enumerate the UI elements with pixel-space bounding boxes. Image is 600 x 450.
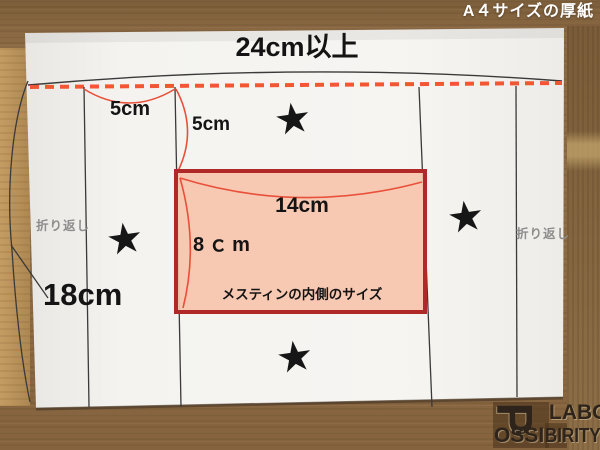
photo-caption-a4-cardboard: A４サイズの厚紙 <box>463 3 594 21</box>
label-width-24cm: 24cm以上 <box>197 33 397 63</box>
label-fold-note-left: 折り返し <box>36 220 90 234</box>
logo-text-birity: BIRITY <box>545 425 600 448</box>
label-inner-box-caption: メスティンの内側のサイズ <box>202 288 402 303</box>
logo-text-labo: LABO <box>549 401 600 425</box>
logo-text-ossi: OSSI <box>494 424 544 448</box>
photo-of-template: A４サイズの厚紙 24cm以上 5cm 5cm 14cm 8ｃm メスティンの内… <box>0 0 600 450</box>
label-fold-height-5cm: 5cm <box>192 115 230 136</box>
star-mark-top: ★ <box>271 96 314 143</box>
label-inner-width-14cm: 14cm <box>262 194 342 217</box>
star-mark-right: ★ <box>444 194 487 241</box>
left-flap-curve <box>10 81 30 402</box>
star-mark-left: ★ <box>103 216 146 263</box>
watermark-logo: P LABO OSSI BIRITY <box>490 396 600 450</box>
star-mark-bottom: ★ <box>273 334 316 381</box>
label-height-18cm: 18cm <box>43 278 122 312</box>
label-fold-note-right: 折り返し <box>516 228 570 242</box>
label-fold-width-5cm: 5cm <box>100 98 160 120</box>
label-inner-height-8cm: 8ｃm <box>193 234 254 256</box>
